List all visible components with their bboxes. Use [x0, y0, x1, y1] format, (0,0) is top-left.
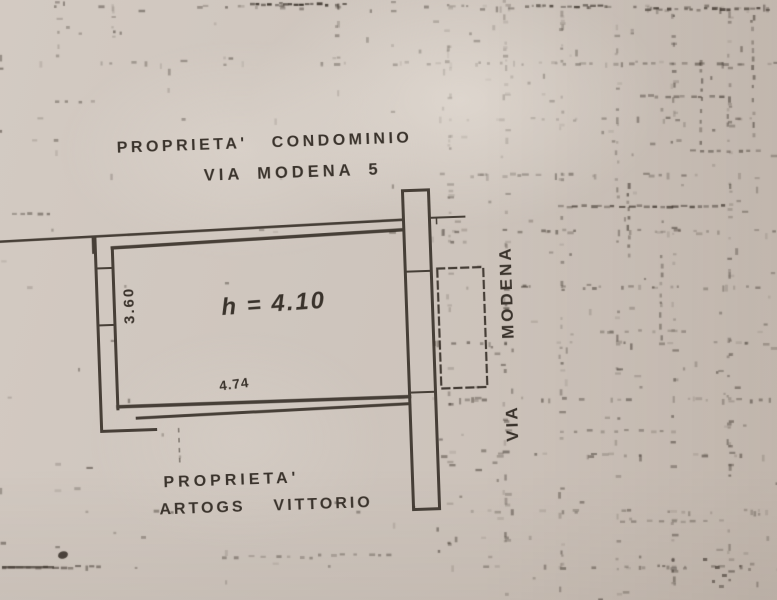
wall-ticks	[96, 257, 436, 404]
street-name-modena: MODENA	[495, 245, 518, 339]
boundary-dashed-stub	[179, 429, 180, 468]
floor-plan-drawing	[0, 0, 777, 600]
scanned-floor-plan-photo: PROPRIETA'CONDOMINIO VIA MODENA 5 h = 4.…	[0, 0, 777, 600]
owner-surname: ARTOGS	[159, 498, 246, 518]
owner-firstname: VITTORIO	[273, 494, 373, 515]
right-pillar	[402, 190, 439, 510]
property-word: PROPRIETA'	[117, 135, 248, 157]
street-name-via: VIA	[502, 404, 523, 442]
room-walls	[95, 228, 411, 432]
street-edge-line	[0, 217, 465, 256]
plan-sheet: PROPRIETA'CONDOMINIO VIA MODENA 5 h = 4.…	[0, 0, 777, 600]
room-depth-dimension: 3.60	[120, 286, 138, 324]
balcony-dashed-outline	[437, 267, 487, 389]
